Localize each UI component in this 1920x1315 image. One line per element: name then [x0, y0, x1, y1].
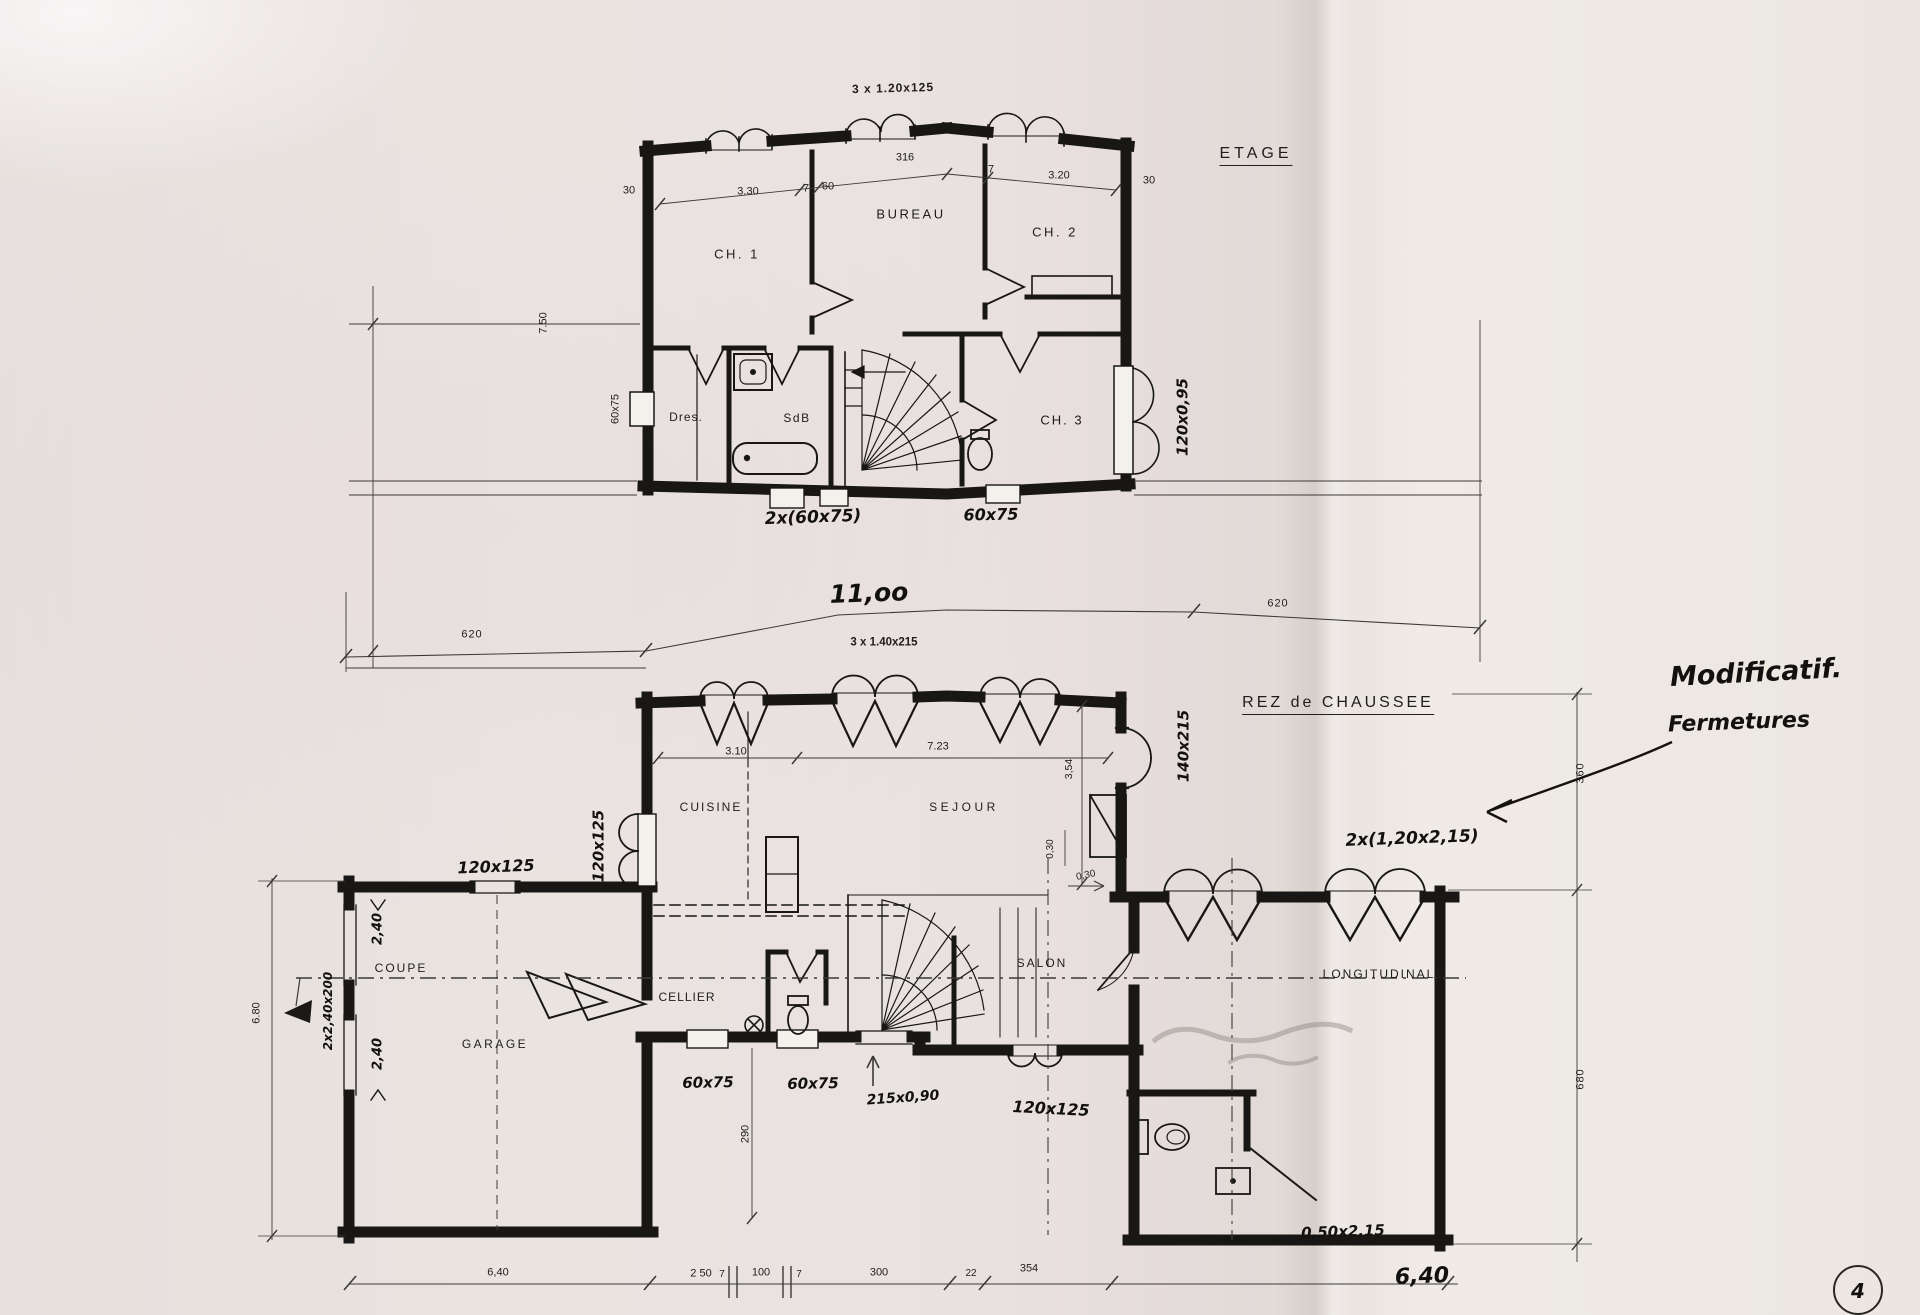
cuisine-left-window — [619, 814, 656, 888]
dim-garage-upper: 2,40 — [372, 913, 385, 945]
garden-double-doors — [1164, 869, 1425, 940]
wc-door-label: 0,50x2,15 — [1301, 1223, 1385, 1241]
room-label-ch3: CH. 3 — [1040, 414, 1083, 427]
dim-offset-a: 0,30 — [1046, 839, 1056, 858]
dim-bottom-3: 100 — [752, 1268, 770, 1279]
floorplan-scan: ETAGE 3 x 1.20x125 30 3.30 7 60 316 7 3.… — [0, 0, 1920, 1315]
dim-etage-4: 316 — [896, 153, 914, 164]
dim-etage-7: 30 — [1143, 176, 1155, 187]
dim-bottom-6: 22 — [965, 1269, 976, 1279]
garage-window-label: 120x125 — [457, 858, 535, 877]
cellier-window-label: 60x75 — [682, 1075, 734, 1091]
ch2-closet — [1032, 276, 1112, 296]
section-label-longitudinale: LONGITUDINALE — [1323, 968, 1446, 980]
etage-window-left-label: 60x75 — [611, 394, 622, 424]
rez-title: REZ de CHAUSSEE — [1242, 695, 1434, 715]
room-label-salon: SALON — [1017, 957, 1068, 969]
rez-plan — [343, 676, 1454, 1247]
entry-door — [1116, 728, 1151, 788]
dim-etage-5: 7 — [988, 165, 994, 176]
room-label-dres: Dres. — [669, 411, 703, 423]
dim-etage-6: 3.20 — [1048, 171, 1069, 182]
dim-etage-2: 7 — [803, 184, 809, 195]
etage-below-right-label: 60x75 — [963, 507, 1018, 524]
dim-width-total: 11,oo — [829, 579, 908, 607]
dim-right-upper: 360 — [1576, 762, 1587, 783]
dim-garage-height: 6.80 — [252, 1002, 263, 1023]
etage-title: ETAGE — [1219, 146, 1292, 166]
room-label-sdb: SdB — [783, 412, 810, 424]
note-fermetures: Fermetures — [1668, 710, 1811, 737]
dim-cuisine-width: 3.10 — [725, 747, 746, 758]
dim-bottom-2: 7 — [719, 1270, 725, 1280]
etage-right-window — [1114, 366, 1159, 474]
room-label-cellier: CELLIER — [658, 991, 715, 1003]
rez-bathroom — [1130, 1093, 1316, 1200]
etage-left-window — [630, 392, 654, 426]
etage-plan — [630, 113, 1159, 508]
dim-garage-lower: 2,40 — [372, 1038, 385, 1070]
dim-etage-1: 3.30 — [737, 187, 758, 198]
dim-bottom-7: 354 — [1020, 1264, 1038, 1275]
dim-etage-0: 30 — [623, 186, 635, 197]
dim-bottom-4: 7 — [796, 1270, 802, 1280]
etage-window-right-label: 120x0,95 — [1176, 378, 1191, 456]
salon-window-label: 120x125 — [1012, 1099, 1090, 1119]
etage-toilet-icon — [968, 430, 992, 470]
etage-top-windows — [706, 113, 1064, 153]
dim-width-left: 620 — [461, 630, 482, 641]
dim-right-lower: 680 — [1576, 1068, 1587, 1089]
dim-etage-3: 60 — [822, 182, 834, 193]
etage-window-note: 3 x 1.20x125 — [852, 81, 934, 95]
dim-hall-depth: 290 — [741, 1125, 752, 1143]
pencil-scribble — [1155, 1024, 1350, 1063]
etage-window-note-below: 3 x 1.40x215 — [850, 637, 917, 649]
dim-width-right: 620 — [1267, 599, 1288, 610]
dim-sejour-width: 7.23 — [927, 742, 948, 753]
dim-bottom-0: 6,40 — [487, 1268, 508, 1279]
rez-wc-toilet-icon — [788, 996, 808, 1034]
etage-sink-icon — [734, 354, 772, 390]
section-label-coupe: COUPE — [375, 962, 428, 974]
room-label-ch1: CH. 1 — [714, 248, 760, 261]
wc-window-label: 60x75 — [787, 1076, 839, 1092]
salon-window — [1008, 1045, 1062, 1067]
dim-bottom-5: 300 — [870, 1268, 888, 1279]
entry-door-label: 140x215 — [1177, 710, 1192, 782]
cellier-openings — [687, 1030, 912, 1048]
room-label-sejour: SEJOUR — [929, 801, 999, 813]
doors-note-label: 2x(1,20x2,15) — [1345, 828, 1479, 850]
room-label-ch2: CH. 2 — [1032, 226, 1078, 239]
cuisine-fixtures — [654, 712, 905, 916]
rez-outer-walls — [343, 696, 1454, 1246]
rez-dimension-lines — [258, 688, 1592, 1298]
page-number: 4 — [1851, 1281, 1865, 1301]
dim-bottom-1: 2 50 — [690, 1269, 711, 1280]
rez-top-windows — [700, 676, 1060, 747]
floorplan-drawing — [0, 0, 1920, 1315]
cuisine-window-label: 120x125 — [592, 810, 607, 882]
etage-below-left-label: 2x(60x75) — [764, 508, 861, 528]
room-label-bureau: BUREAU — [876, 208, 945, 221]
etage-bathtub-icon — [733, 443, 817, 474]
etage-dimension-lines — [340, 168, 1486, 672]
dim-right-width-hand: 6,40 — [1394, 1265, 1449, 1289]
dim-right-height: 3,54 — [1064, 759, 1075, 779]
etage-stairs-icon — [845, 350, 962, 486]
room-label-cuisine: CUISINE — [680, 801, 743, 813]
dim-etage-height: 7.50 — [539, 312, 550, 333]
circled-x-symbol — [745, 1016, 763, 1034]
room-label-garage: GARAGE — [462, 1038, 528, 1050]
dim-garage-windows: 2x2,40x200 — [322, 972, 334, 1051]
cellier-door-leaves — [527, 972, 645, 1020]
